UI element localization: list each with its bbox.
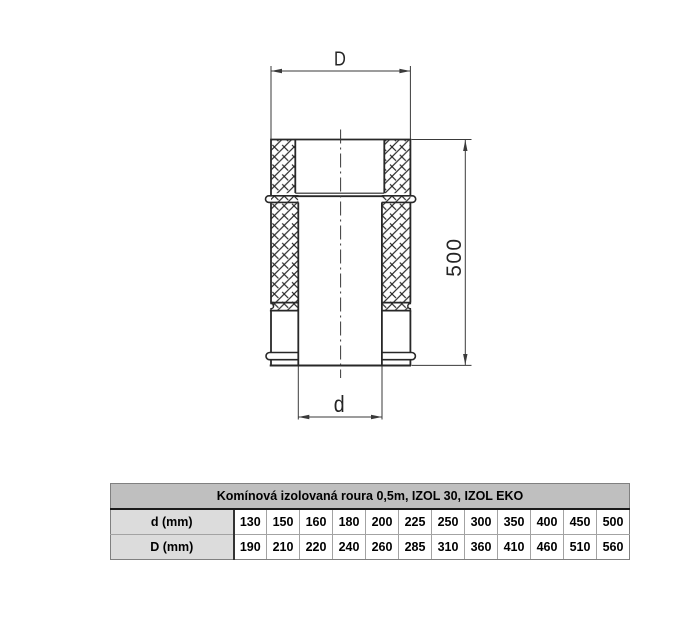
svg-text:500: 500: [443, 237, 466, 276]
svg-text:d: d: [334, 391, 345, 417]
svg-text:D: D: [334, 47, 346, 70]
